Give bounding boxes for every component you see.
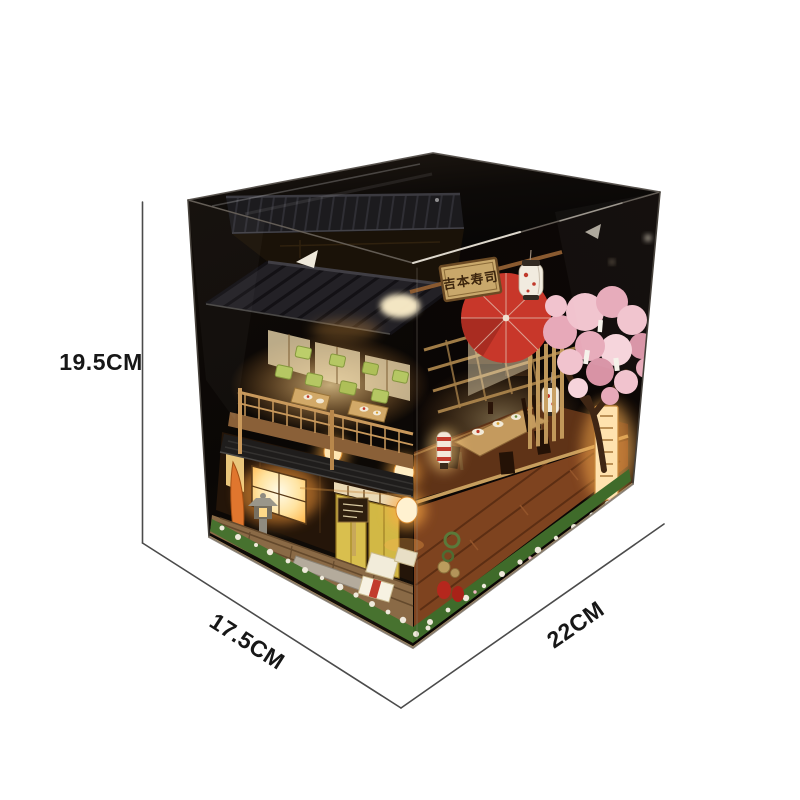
height-dimension-label: 19.5CM [59, 349, 143, 375]
glint [435, 198, 439, 202]
red-figurine [437, 581, 451, 599]
width-dimension-label: 22CM [542, 596, 609, 654]
depth-dimension-label: 17.5CM [205, 608, 289, 675]
sign-plaque: 吉本寿司 [440, 258, 502, 301]
acrylic-display-box: 吉本寿司 [188, 153, 660, 648]
striped-floor-lamp [427, 428, 461, 472]
red-figurine [452, 586, 464, 602]
product-photo: 19.5CM 17.5CM 22CM [0, 0, 800, 800]
